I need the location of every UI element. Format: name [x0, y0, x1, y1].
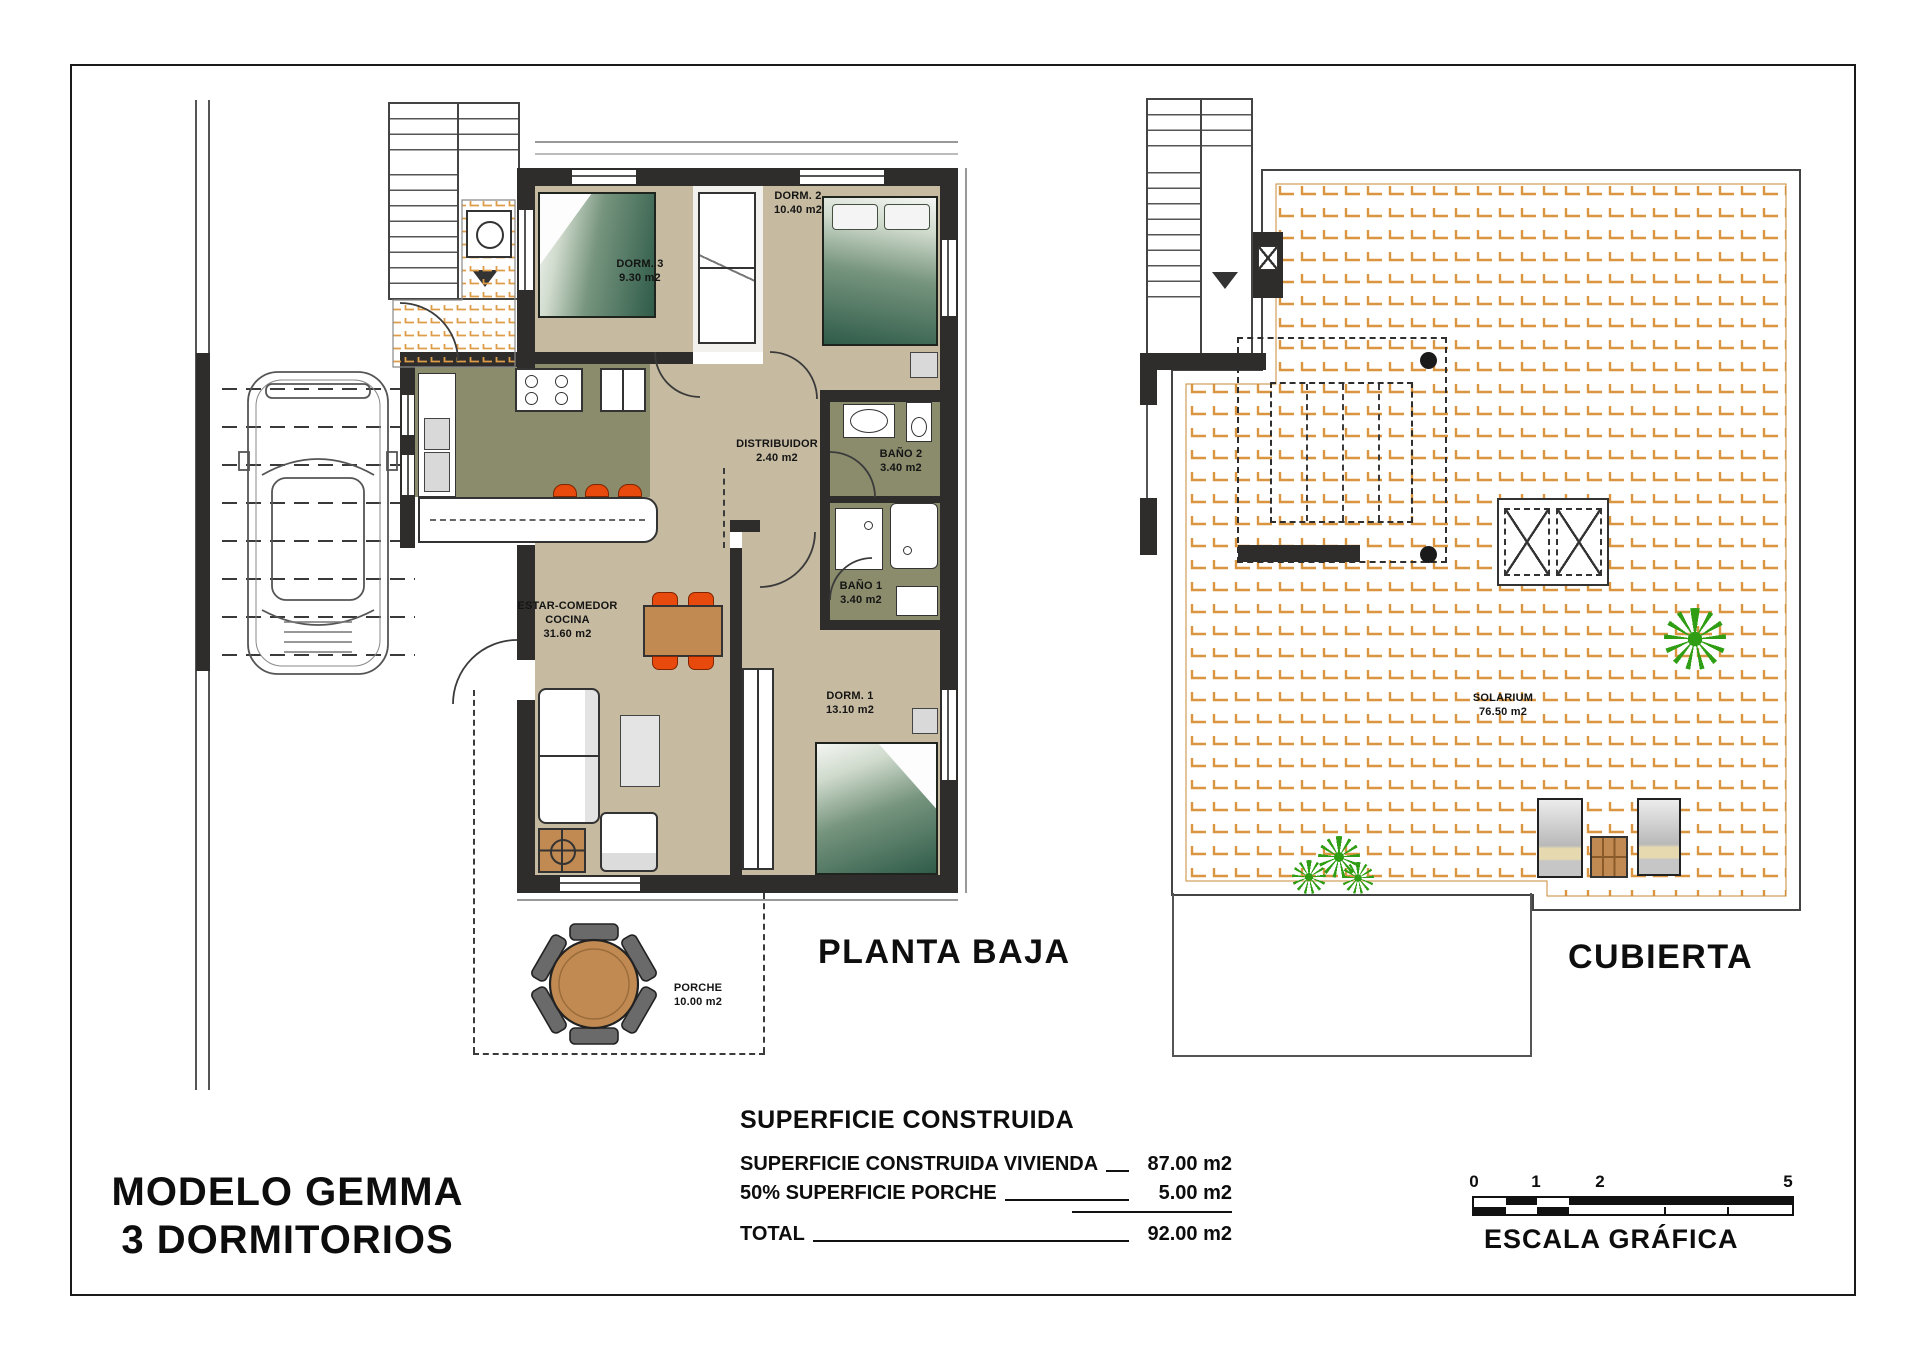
architectural-plan-sheet: DORM. 3 9.30 m2 DORM. 2 10.40 m2 DISTRIB…	[0, 0, 1920, 1356]
living-dorm1-wall	[730, 548, 742, 875]
wall-left-lower	[517, 700, 535, 875]
hob-burner	[525, 375, 538, 388]
dorm1-bed	[815, 742, 938, 875]
plant	[1292, 860, 1326, 894]
graphic-scale: 0 1 2 5 ESCALA GRÁFICA	[1472, 1172, 1802, 1272]
room-label-bano1: BAÑO 1 3.40 m2	[826, 580, 896, 608]
roof-wall	[1140, 498, 1157, 555]
porch-boundary	[473, 690, 475, 1053]
sofa	[538, 688, 600, 824]
kitchen-appliance	[424, 418, 450, 450]
window	[572, 170, 636, 184]
dining-chair	[652, 592, 678, 606]
roof-washer	[1258, 246, 1278, 270]
skylight	[1497, 498, 1609, 586]
coffee-table	[620, 715, 660, 787]
bar-stool	[553, 484, 577, 497]
scale-tick: 0	[1469, 1172, 1478, 1192]
distribuidor-dorm1-wall	[730, 520, 760, 532]
dining-chair	[688, 656, 714, 670]
surface-row: 50% SUPERFICIE PORCHE 5.00 m2	[740, 1182, 1232, 1205]
surface-row: SUPERFICIE CONSTRUIDA VIVIENDA 87.00 m2	[740, 1153, 1232, 1176]
hob-burner	[555, 392, 568, 405]
dorm1-wardrobe	[742, 668, 774, 870]
dining-chair	[688, 592, 714, 606]
dorm1-nightstand	[912, 708, 938, 734]
carport-wall	[196, 353, 210, 671]
dorm2-bench	[910, 352, 938, 378]
scale-tick: 1	[1531, 1172, 1540, 1192]
bar-stool	[618, 484, 642, 497]
washing-machine	[466, 210, 512, 258]
sun-lounger	[1537, 798, 1583, 878]
window	[942, 240, 956, 316]
bath2-toilet	[906, 402, 932, 442]
surface-total-row: TOTAL 92.00 m2	[740, 1223, 1232, 1246]
roof-window	[1141, 405, 1156, 498]
eave-line	[535, 153, 958, 155]
room-label-porche: PORCHE 10.00 m2	[658, 982, 738, 1010]
eave-line	[535, 141, 958, 143]
room-label-distribuidor: DISTRIBUIDOR 2.40 m2	[722, 438, 832, 466]
surface-table: SUPERFICIE CONSTRUIDA SUPERFICIE CONSTRU…	[740, 1106, 1232, 1252]
stair-down-arrow	[1212, 272, 1238, 289]
window	[800, 170, 884, 184]
stair-divider	[457, 104, 459, 298]
bed-pillow	[884, 204, 930, 230]
bath2-sink	[843, 404, 895, 438]
window	[402, 395, 414, 435]
distribuidor-dashed-line	[723, 468, 725, 548]
room-label-dorm3: DORM. 3 9.30 m2	[595, 258, 685, 286]
bath-divider-wall	[830, 496, 940, 503]
leader-line	[1106, 1170, 1129, 1172]
roof-drain	[1420, 546, 1437, 563]
roof-drain	[1420, 352, 1437, 369]
dining-chair	[652, 656, 678, 670]
dining-table	[643, 605, 723, 657]
dorm2-bed	[822, 196, 938, 346]
bed-fold	[879, 744, 936, 809]
bath1-tub	[890, 503, 938, 569]
scale-tick: 2	[1595, 1172, 1604, 1192]
skylight-panel	[1556, 508, 1602, 576]
bath1-sink	[896, 586, 938, 616]
kitchen-wall-left	[400, 352, 415, 548]
window	[942, 690, 956, 780]
stairwell-line	[1306, 384, 1308, 521]
stairwell-line	[1342, 384, 1344, 521]
side-table-lamp	[538, 828, 586, 873]
bar-stool	[585, 484, 609, 497]
stair-steps	[390, 160, 457, 298]
carport-pergola-lines	[213, 352, 415, 692]
breakfast-bar	[418, 497, 658, 543]
sun-lounger	[1637, 798, 1681, 876]
eave-line	[517, 899, 958, 901]
bath1-shower	[835, 508, 883, 570]
room-label-bano2: BAÑO 2 3.40 m2	[856, 448, 946, 476]
scale-bar	[1472, 1196, 1794, 1216]
kitchen-hob	[515, 368, 583, 412]
kitchen-appliance	[424, 452, 450, 492]
dorm3-bed	[538, 192, 656, 318]
scale-label: ESCALA GRÁFICA	[1484, 1224, 1739, 1255]
kitchen-wall-top	[400, 352, 535, 367]
skylight-panel	[1504, 508, 1550, 576]
lower-floor-outline	[1172, 893, 1532, 1057]
bed-fold	[540, 194, 591, 265]
room-label-dorm2: DORM. 2 10.40 m2	[748, 190, 848, 218]
room-label-estar: ESTAR-COMEDOR COCINA 31.60 m2	[510, 600, 625, 641]
stair-divider	[1200, 100, 1202, 363]
window	[402, 455, 414, 495]
leader-line	[813, 1240, 1129, 1242]
room-label-dorm1: DORM. 1 13.10 m2	[810, 690, 890, 718]
stair-down-arrow	[472, 270, 498, 287]
stair-steps	[390, 104, 518, 158]
roof-wall	[1140, 370, 1157, 405]
roof-plan-title: CUBIERTA	[1568, 938, 1753, 977]
armchair	[600, 812, 658, 872]
window	[519, 210, 533, 290]
hob-burner	[555, 375, 568, 388]
room-label-solarium: SOLARIUM 76.50 m2	[1453, 692, 1553, 720]
leader-line	[1005, 1199, 1129, 1201]
solarium-table	[1590, 836, 1628, 878]
surface-table-title: SUPERFICIE CONSTRUIDA	[740, 1106, 1232, 1135]
sum-line	[1072, 1211, 1232, 1213]
dorm3-wall-bottom	[535, 352, 693, 364]
model-title: MODELO GEMMA 3 DORMITORIOS	[90, 1168, 485, 1264]
stairwell-line	[1378, 384, 1380, 521]
scale-tick: 5	[1783, 1172, 1792, 1192]
plant	[1664, 608, 1726, 670]
porch-boundary	[763, 893, 765, 1053]
plant	[1342, 862, 1374, 894]
bath1-wall-bottom	[820, 620, 958, 630]
kitchen-cabinet	[600, 368, 646, 412]
ground-plan-title: PLANTA BAJA	[818, 933, 1071, 972]
stair-steps	[1148, 158, 1200, 298]
hob-burner	[525, 392, 538, 405]
porch-boundary	[473, 1053, 765, 1055]
eave-line	[965, 168, 967, 893]
bath2-wall-top	[820, 390, 958, 402]
window	[560, 877, 640, 891]
